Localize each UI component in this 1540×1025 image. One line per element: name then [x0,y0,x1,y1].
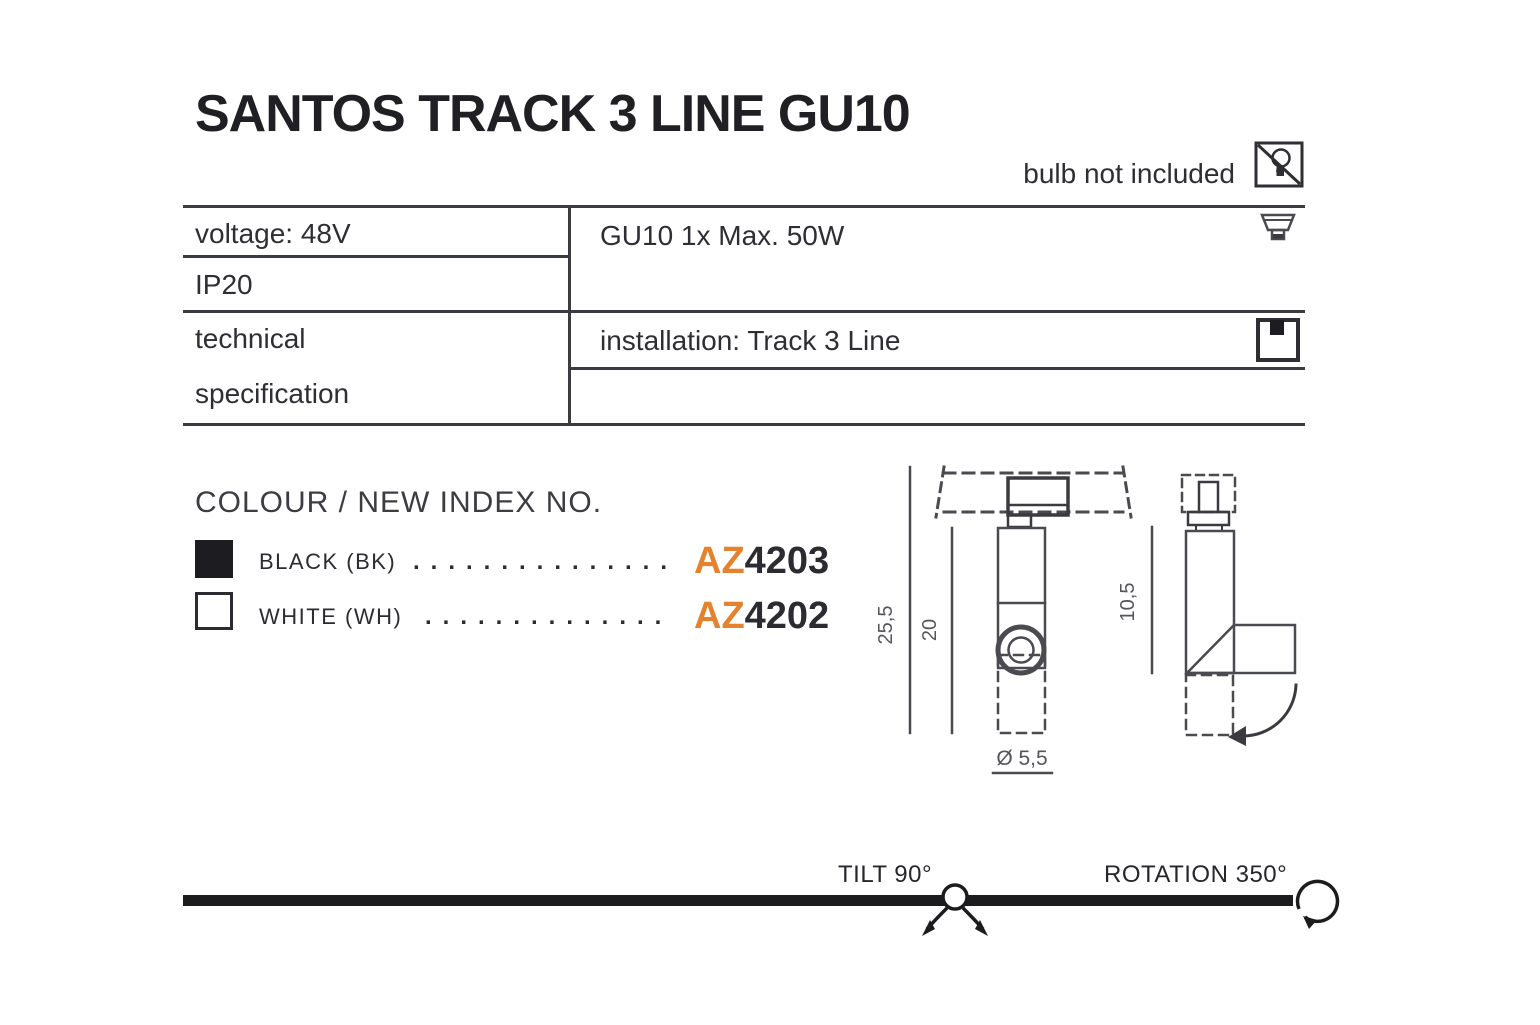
track-mount-icon [1255,317,1301,363]
spec-table: voltage: 48V IP20 technical specificatio… [183,205,1305,426]
index-code-black: AZ4203 [694,540,829,583]
table-line-under-installation [568,367,1305,370]
spec-voltage: voltage: 48V [195,218,351,250]
spec-left-header-line1: technical [195,323,306,355]
dim-side-height: 10,5 [1117,583,1139,622]
index-code-number: 4202 [745,595,830,637]
table-border-bottom [183,423,1305,426]
colour-label-white: WHITE (WH) [259,604,402,630]
swatch-white [195,592,233,630]
table-line-middle [183,310,1305,313]
dim-body-height: 20 [919,619,941,641]
index-code-prefix: AZ [694,540,745,582]
spec-lamp: GU10 1x Max. 50W [600,220,844,252]
dim-diameter: Ø 5,5 [996,747,1047,770]
index-code-white: AZ4202 [694,595,829,638]
swatch-black [195,540,233,578]
index-code-number: 4203 [745,540,830,582]
table-border-top [183,205,1305,208]
rotation-label: ROTATION 350° [1104,861,1287,889]
table-divider-vertical [568,205,571,426]
gu10-bulb-icon [1260,213,1296,253]
spec-ip-rating: IP20 [195,269,253,301]
bulb-not-included-note: bulb not included [1023,158,1235,190]
colour-section-heading: COLOUR / NEW INDEX NO. [195,486,602,520]
leader-dots-black: ............... [413,548,678,576]
colour-label-black: BLACK (BK) [259,549,396,575]
table-line-under-voltage [183,255,571,258]
product-title: SANTOS TRACK 3 LINE GU10 [195,84,910,144]
track-bar-graphic [183,895,1293,906]
spec-left-header-line2: specification [195,378,349,410]
rotation-arrow-icon [1292,878,1348,934]
index-code-prefix: AZ [694,595,745,637]
technical-drawing: 25,5 20 Ø 5,5 10,5 [870,455,1340,795]
leader-dots-white: .............. [425,603,672,631]
tilt-arrows-icon [900,878,1020,950]
bulb-not-included-icon [1254,141,1304,188]
spec-installation: installation: Track 3 Line [600,325,900,357]
datasheet-page: SANTOS TRACK 3 LINE GU10 bulb not includ… [0,0,1540,1025]
dim-overall-height: 25,5 [875,606,897,645]
